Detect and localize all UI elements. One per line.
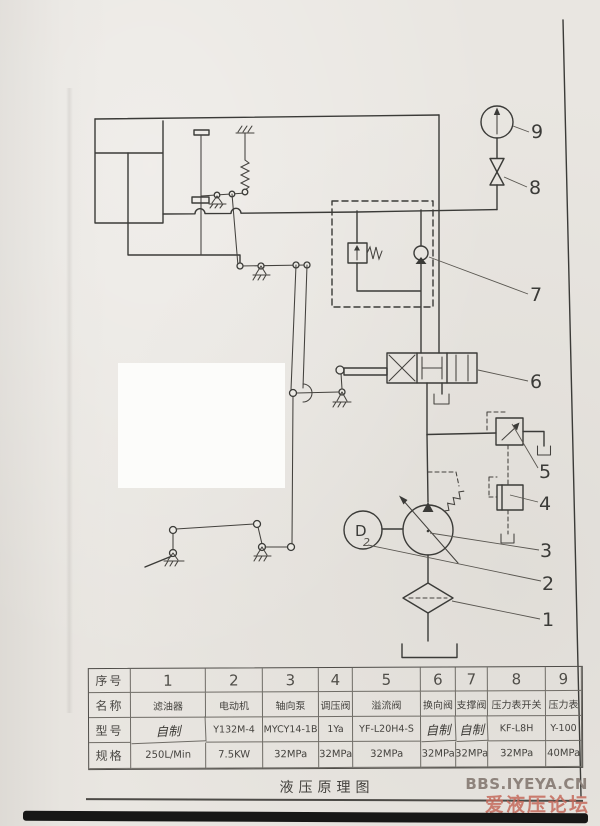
scanned-hydraulic-schematic-page: D 2 9 8 7 6 5 4 [0,0,600,826]
table-cell: 5 [353,668,421,692]
table-cell: 轴向泵 [263,692,319,717]
table-cell: 40MPa [546,741,582,767]
table-cell: 自制 [421,716,457,742]
table-cell: 调压阀 [319,692,353,717]
table-cell: Y132M-4 [206,717,263,742]
table-cell: 滤油器 [131,693,206,718]
label-9: 9 [531,121,543,143]
table-cell: 6 [421,667,456,691]
table-cell: 9 [546,667,582,691]
label-6: 6 [530,371,542,393]
row-header-index: 序号 [89,669,131,693]
spring-icon [241,160,249,192]
directional-valve-6 [387,353,477,435]
table-cell: 压力表开关 [488,691,546,716]
spring-icon [367,247,382,259]
tank-icon [538,446,551,455]
table-cell: 压力表 [546,691,582,716]
press-machine [95,115,439,263]
table-cell: 32MPa [456,741,488,767]
row-header-spec: 规格 [89,743,131,769]
spool-push-rod [344,368,387,375]
label-4: 4 [539,493,551,515]
table-cell: 7 [456,667,488,691]
table-cell: 2 [206,668,263,692]
pilot-line [428,472,459,486]
label-5: 5 [539,461,551,483]
flow-arrow [423,502,434,512]
pivot-ground-icon [164,553,184,566]
table-cell: 换向阀 [421,691,456,716]
table-cell: YF-L20H4-S [353,717,421,742]
row-header-name: 名称 [89,693,131,718]
table-cell: 32MPa [353,742,421,768]
servo-valve-mechanism [192,126,254,266]
table-cell: 溢流阀 [353,692,421,717]
component-labels: 9 8 7 6 5 4 3 2 1 [529,121,554,631]
parts-list-table: 序号 1 2 3 4 5 6 7 8 9 名称 滤油器 电动机 轴向泵 调压阀 … [88,666,583,770]
table-cell: 8 [488,667,546,691]
label-8: 8 [529,177,541,199]
table-cell: 4 [319,668,353,692]
table-cell: 1Ya [319,717,353,742]
label-3: 3 [540,540,552,562]
leader-lines [368,126,541,619]
relief-valve-5 [427,412,551,485]
table-cell: 32MPa [319,742,353,768]
pilot-line [489,477,497,497]
table-cell: 电动机 [206,692,263,717]
table-cell: 32MPa [263,742,319,768]
erased-white-patch [118,363,285,488]
drawing-title: 液压原理图 [257,777,397,797]
row-header-model: 型号 [89,718,131,743]
pilot-line [487,412,508,432]
main-tank-icon [402,644,457,658]
table-cell: MYCY14-1B [263,717,319,742]
table-cell: 自制 [131,716,207,744]
regulating-valve-4 [489,477,523,543]
label-1: 1 [542,609,554,631]
table-cell: 支撑阀 [456,691,488,716]
tank-icon [501,534,514,543]
tank-icon [434,394,449,404]
pressure-gauge-9 [481,106,513,138]
compensator-spring-icon [444,491,464,511]
support-valve-7 [332,201,433,353]
label-7: 7 [530,284,542,306]
table-cell: 7.5KW [206,742,263,768]
ceiling-ground-icon [236,126,254,133]
motor-handwritten-mark: 2 [363,536,370,549]
table-cell: 32MPa [421,741,456,767]
gauge-shutoff-valve-8 [490,159,504,186]
label-2: 2 [542,573,554,595]
table-cell: 自制 [456,716,489,742]
table-cell: 1 [131,669,206,693]
table-cell: Y-100 [546,716,582,741]
pump-group: D 2 [344,435,464,658]
table-cell: 32MPa [488,741,546,767]
table-cell: 250L/Min [131,743,206,769]
table-cell: 3 [263,668,319,692]
table-cell: KF-L8H [488,716,546,741]
